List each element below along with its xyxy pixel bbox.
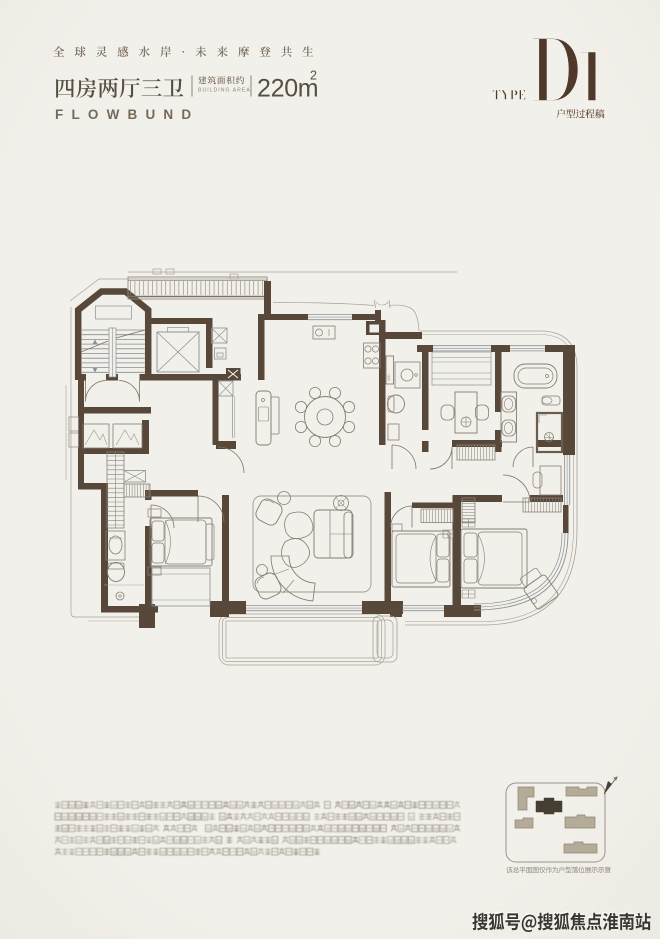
svg-text:2: 2 bbox=[310, 69, 317, 83]
svg-text:WD: WD bbox=[386, 374, 391, 381]
svg-text:BUILDING AREA: BUILDING AREA bbox=[198, 88, 251, 94]
svg-text:FLOWBUND: FLOWBUND bbox=[55, 107, 199, 122]
